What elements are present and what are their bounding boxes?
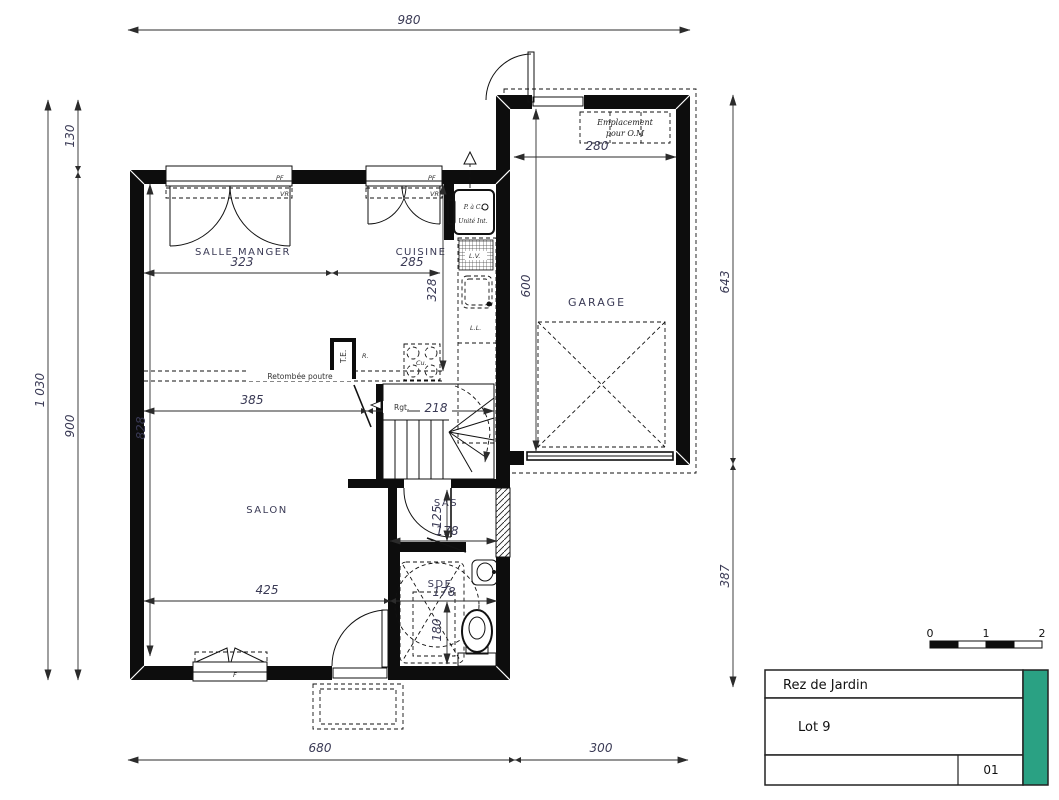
entry-door bbox=[332, 610, 388, 680]
salon-window: F bbox=[193, 648, 267, 681]
duct-label: T.E. bbox=[339, 350, 348, 364]
scale-label-2: 2 bbox=[1039, 627, 1046, 640]
window-label-vr: VR bbox=[280, 190, 289, 198]
dim-sas-depth: 125 bbox=[430, 506, 444, 529]
shower bbox=[400, 562, 464, 663]
bin-storage-label-2: pour O.M bbox=[606, 129, 645, 138]
dim-right-lower: 387 bbox=[718, 564, 732, 587]
title-block-floor: Rez de Jardin bbox=[783, 678, 868, 693]
title-block-lot: Lot 9 bbox=[798, 720, 830, 735]
garage-door bbox=[524, 451, 676, 465]
dim-sde-width: 178 bbox=[433, 585, 456, 599]
bin-storage-label-1: Emplacement bbox=[596, 118, 654, 127]
beam-label: Retombée poutre bbox=[267, 372, 333, 381]
floor-plan-drawing: PF VR PF VR F bbox=[0, 0, 1059, 800]
kitchen-sink bbox=[462, 276, 492, 308]
room-label-garage: GARAGE bbox=[568, 296, 626, 309]
kitchen-window: PF VR bbox=[366, 166, 442, 224]
room-labels: SALLE MANGER CUISINE GARAGE SALON SAS SD… bbox=[195, 247, 626, 590]
dining-window: PF VR bbox=[166, 166, 292, 246]
fridge-label: R. bbox=[362, 352, 369, 360]
beam: Retombée poutre bbox=[144, 370, 443, 381]
dim-left-upper: 130 bbox=[63, 124, 77, 147]
dim-overall-height: 1 030 bbox=[33, 372, 47, 407]
dim-stair-width: 218 bbox=[425, 401, 448, 415]
room-label-salon: SALON bbox=[246, 505, 287, 516]
washbasin bbox=[472, 560, 497, 585]
washer-label: L.L. bbox=[470, 324, 481, 332]
window-label-vr: VR bbox=[430, 190, 439, 198]
garage-interior: Emplacement pour O.M bbox=[538, 112, 670, 447]
dim-hall-width: 385 bbox=[241, 393, 264, 407]
dim-kitchen-depth: 328 bbox=[425, 278, 439, 301]
floor-plan-page: PF VR PF VR F bbox=[0, 0, 1059, 800]
dim-dining-width: 323 bbox=[231, 255, 254, 269]
windows-doors: PF VR PF VR F bbox=[166, 52, 676, 729]
heat-pump-sublabel: Unité Int. bbox=[458, 218, 487, 225]
dim-right-upper: 643 bbox=[718, 271, 732, 294]
heat-pump-unit: P. à C. Unité Int. bbox=[448, 190, 494, 234]
dim-garage-width: 280 bbox=[586, 139, 609, 153]
window-label-f: F bbox=[233, 671, 237, 679]
title-block-sheet: 01 bbox=[983, 763, 998, 777]
title-block-accent bbox=[1023, 670, 1048, 785]
dim-garage-depth: 600 bbox=[519, 274, 533, 297]
porch-outline bbox=[313, 684, 403, 729]
window-label-pf: PF bbox=[428, 174, 436, 182]
dim-overall-width: 980 bbox=[398, 13, 421, 27]
dim-kitchen-width: 285 bbox=[401, 255, 424, 269]
dim-bottom-right: 300 bbox=[590, 741, 613, 755]
staircase bbox=[354, 384, 494, 479]
dim-bottom-left: 680 bbox=[309, 741, 332, 755]
dim-living-width: 425 bbox=[256, 583, 279, 597]
dim-left-lower: 900 bbox=[63, 414, 77, 437]
scale-bar: 0 1 2 bbox=[927, 627, 1046, 648]
heat-pump-label: P. à C. bbox=[463, 204, 482, 211]
car-space bbox=[538, 322, 665, 447]
dishwasher-label: L.V. bbox=[469, 252, 480, 260]
dim-sde-depth: 180 bbox=[430, 618, 444, 641]
cooktop: Cu. bbox=[404, 344, 440, 380]
dim-living-depth: 828 bbox=[134, 416, 148, 439]
walls bbox=[130, 95, 690, 680]
title-block: Rez de Jardin Lot 9 01 bbox=[765, 670, 1048, 785]
storage-label: Rgt. bbox=[394, 403, 409, 412]
scale-label-1: 1 bbox=[983, 627, 990, 640]
sas-sde bbox=[395, 488, 497, 666]
window-label-pf: PF bbox=[276, 174, 284, 182]
cooktop-label: Cu. bbox=[416, 359, 427, 367]
scale-label-0: 0 bbox=[927, 627, 934, 640]
